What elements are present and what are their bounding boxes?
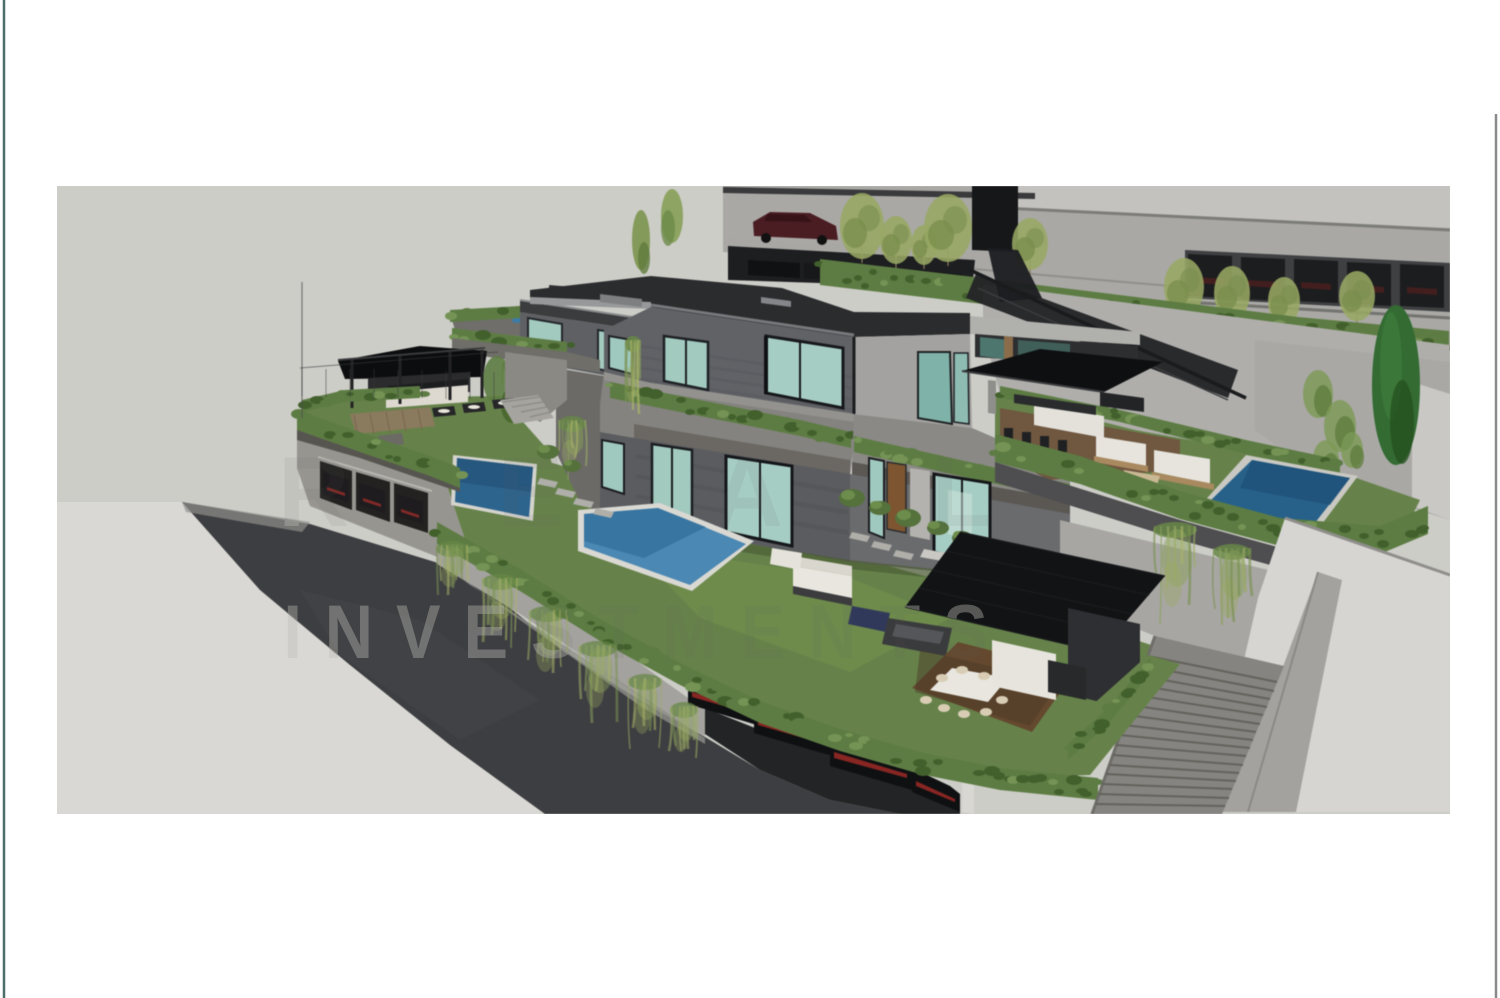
svg-text:REAL: REAL (278, 436, 1140, 547)
